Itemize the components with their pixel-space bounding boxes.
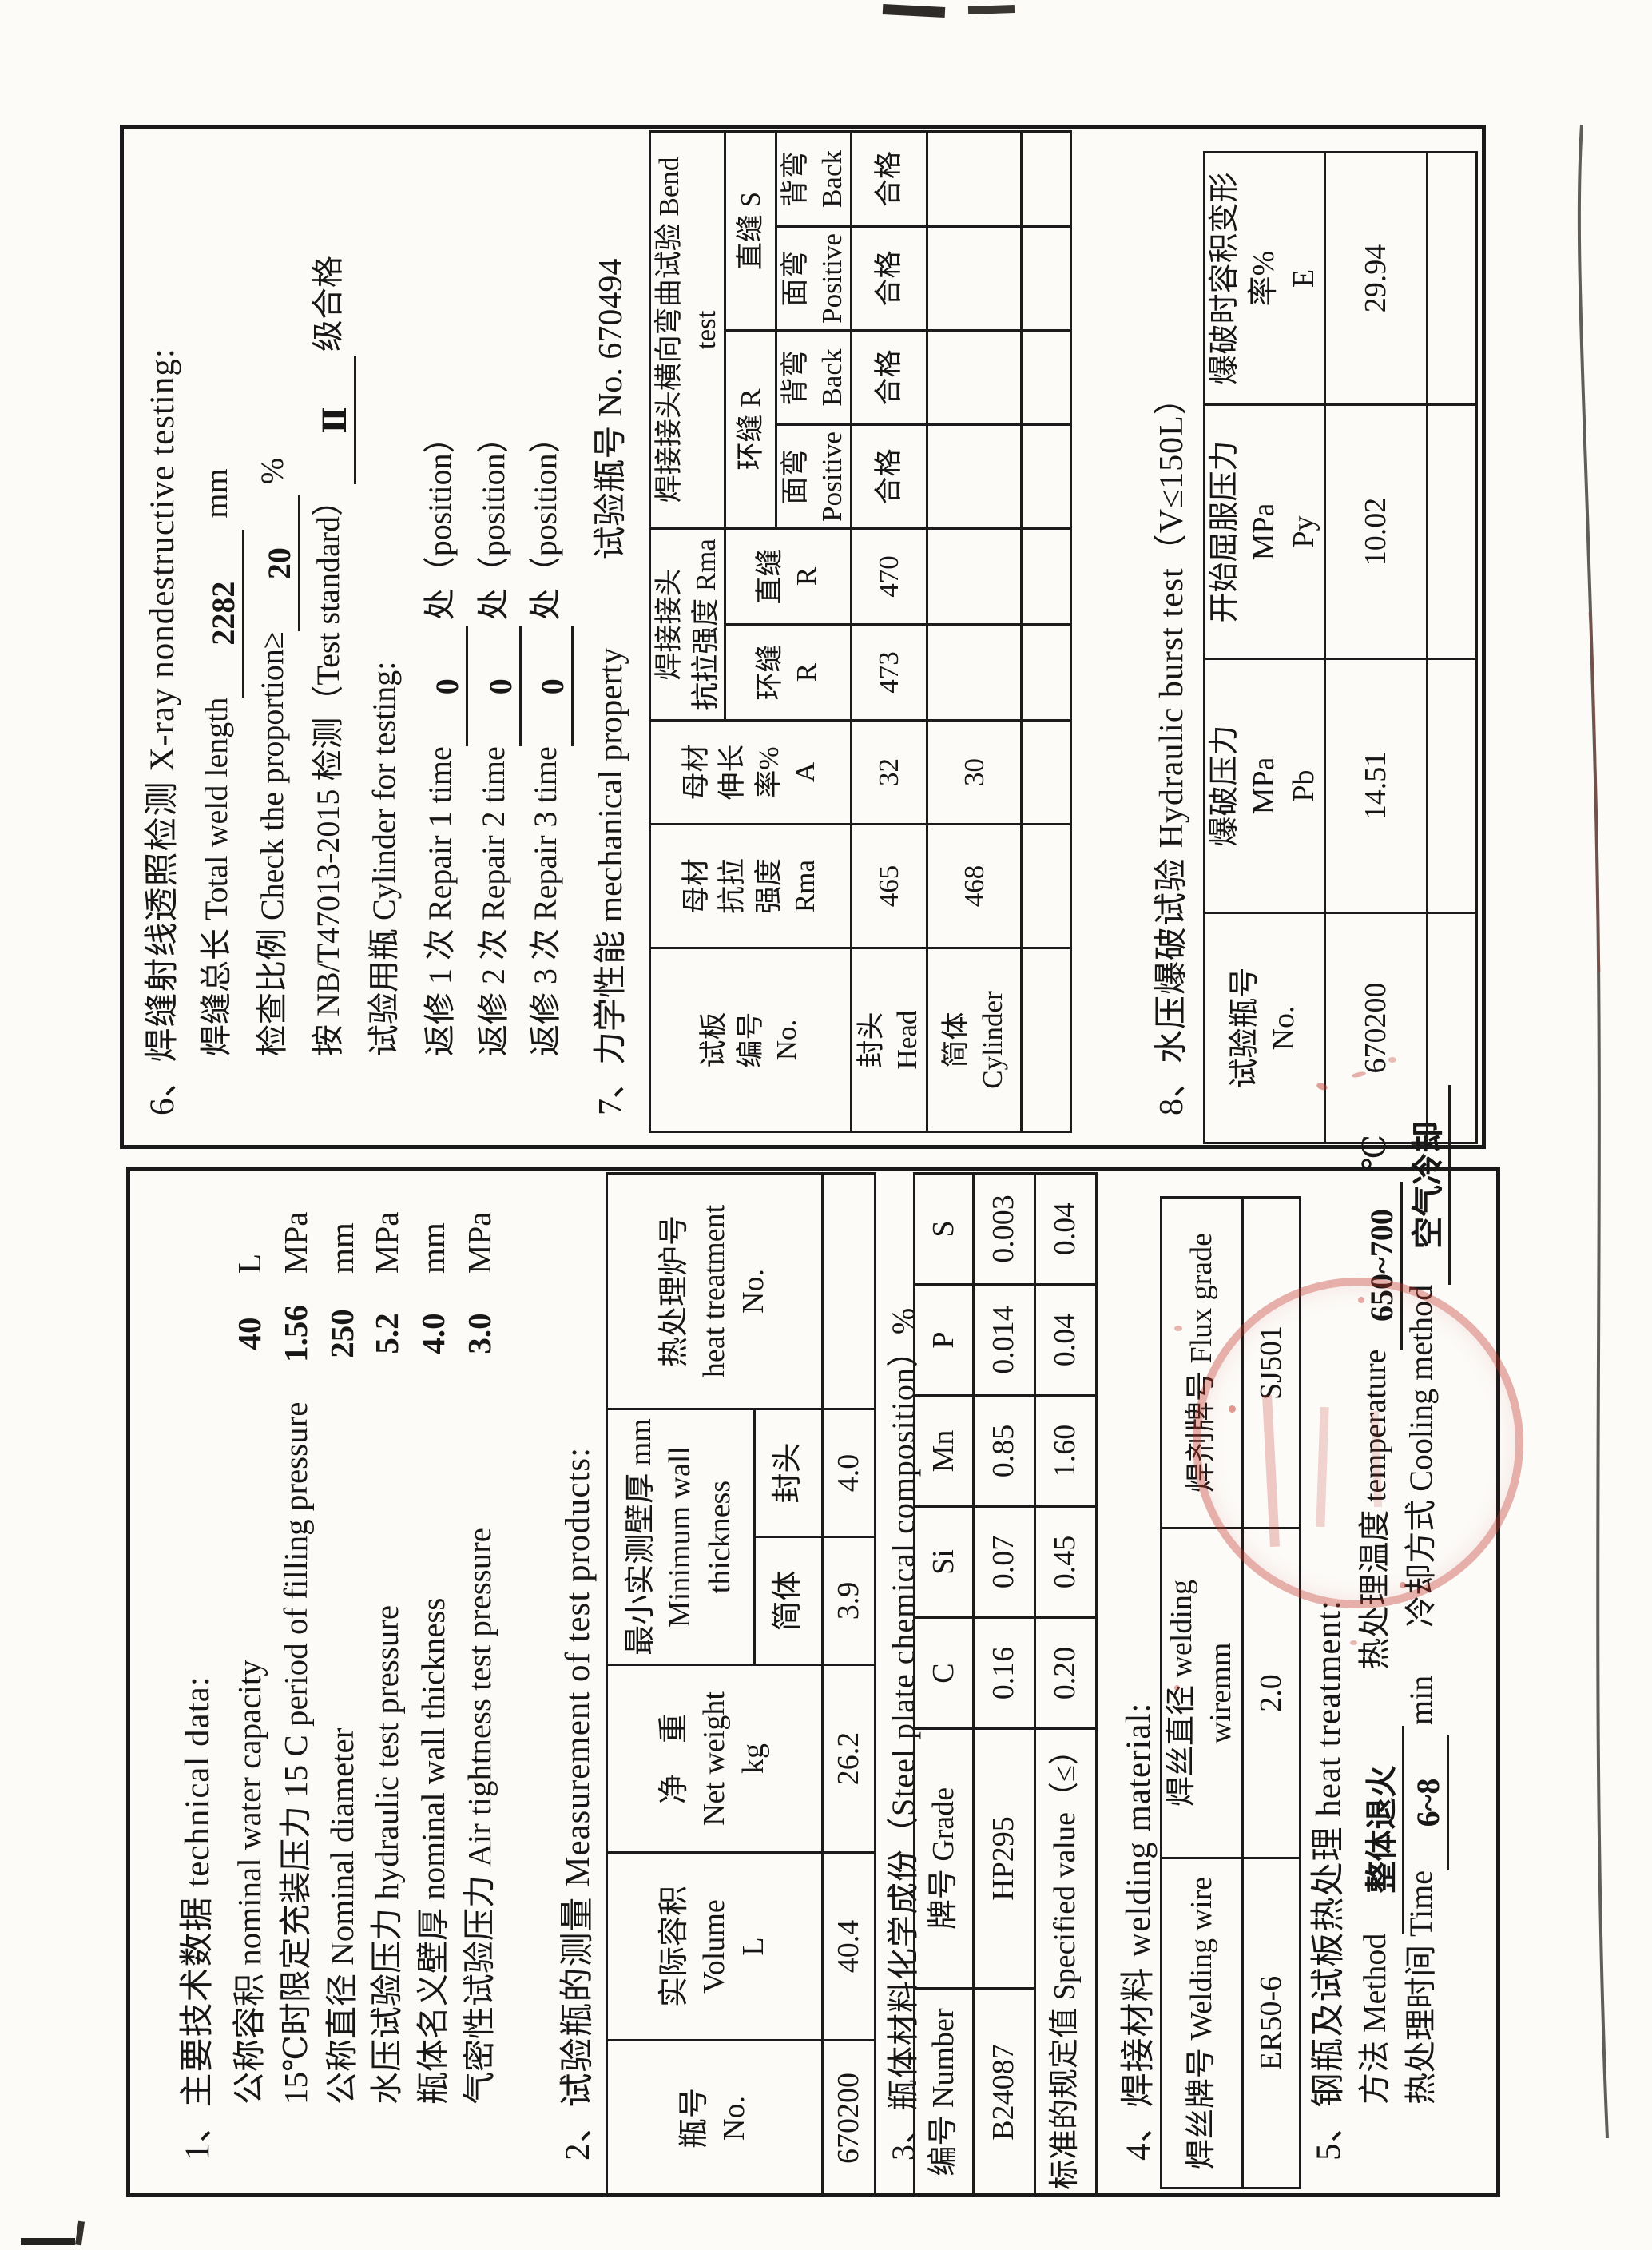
table-cell: 1.60 — [1035, 1396, 1097, 1507]
table-cell: 焊丝牌号 Welding wire — [1162, 1858, 1243, 2188]
table-cell: 试验瓶号 No. — [1205, 913, 1325, 1143]
table-row: 670200 14.51 10.02 29.94 — [1325, 153, 1428, 1143]
table-cell: 爆破压力 MPa Pb — [1205, 659, 1325, 913]
spec-value: 3.0 — [460, 1274, 498, 1393]
table-cell: 30 — [927, 721, 1022, 825]
table-cell — [1428, 659, 1477, 913]
table-cell — [927, 131, 1022, 226]
table-cell: 最小实测壁厚 mm Minimum wall thickness — [607, 1409, 755, 1665]
table-cell — [927, 528, 1022, 624]
table-cell: 封头 — [755, 1409, 823, 1537]
field-unit: 处（position） — [414, 421, 460, 620]
table-cell: 468 — [927, 825, 1022, 948]
section7-heading-line: 7、力学性能 mechanical property 试验瓶号 No. 6704… — [583, 259, 632, 1115]
table-cell: 合格 — [852, 226, 927, 330]
field-value: 0 — [428, 626, 468, 746]
xray-line: 检查比例 Check the proportion≥ 20 % — [246, 458, 293, 1056]
welding-material-table: 焊丝牌号 Welding wire 焊丝直径 welding wiremm 焊剂… — [1160, 1196, 1301, 2189]
table-cell — [927, 330, 1022, 424]
spec-value: 250 — [323, 1274, 361, 1393]
table-cell — [927, 226, 1022, 330]
spec-item: 水压试验压力 hydraulic test pressure 5.2 MPa — [359, 1186, 407, 2105]
table-cell: 标准的规定值 Specified value（≤） — [1035, 1729, 1097, 2196]
table-cell: 母材 抗拉 强度 Rma — [650, 825, 852, 948]
table-cell: 焊接接头 抗拉强度 Rma — [650, 528, 725, 720]
spec-unit: mm — [323, 1186, 361, 1274]
table-cell: 直缝 R — [725, 528, 852, 624]
table-cell: 14.51 — [1325, 659, 1428, 913]
table-cell: 465 — [852, 825, 927, 948]
table-cell: 简体 Cylinder — [927, 948, 1022, 1132]
section5-heading: 5、钢瓶及试板热处理 heat treatment: — [1301, 1600, 1350, 2161]
spec-label: 公称直径 Nominal diameter — [315, 1393, 363, 2105]
spec-unit: L — [230, 1186, 268, 1274]
spec-label: 气密性试验压力 Air tightness test pressure — [452, 1393, 500, 2105]
burst-test-table: 试验瓶号 No. 爆破压力 MPa Pb 开始屈服压力 MPa Py 爆破时容积… — [1203, 151, 1478, 1144]
measurement-table: 瓶号 No. 实际容积 Volume L 净 重 Net weight kg 最… — [606, 1172, 876, 2197]
spec-item: 气密性试验压力 Air tightness test pressure 3.0 … — [452, 1186, 500, 2105]
table-cell: 直缝 S — [725, 131, 776, 330]
table-cell — [1022, 131, 1071, 226]
section2-heading: 2、试验瓶的测量 Measurement of test products: — [550, 1447, 599, 2161]
scan-corner-artifact — [21, 2238, 75, 2245]
table-cell: 40.4 — [823, 1853, 876, 2041]
table-cell: 背弯 Back — [776, 131, 852, 226]
spec-item: 瓶体名义壁厚 nominal wall thickness 4.0 mm — [406, 1186, 454, 2105]
table-cell: S — [915, 1174, 974, 1285]
table-cell: 编号 Number — [915, 1989, 974, 2196]
spec-label: 公称容积 nominal water capacity — [222, 1393, 270, 2105]
table-cell: 环缝 R — [725, 330, 776, 528]
table-cell: 爆破时容积变形 率% E — [1205, 153, 1325, 405]
section1-heading: 1、主要技术数据 technical data: — [169, 1676, 219, 2161]
table-row: 试验瓶号 No. 爆破压力 MPa Pb 开始屈服压力 MPa Py 爆破时容积… — [1205, 153, 1325, 1143]
table-cell — [927, 625, 1022, 721]
field-unit: mm — [197, 468, 235, 518]
table-cell — [1022, 424, 1071, 528]
spec-value: 5.2 — [367, 1274, 406, 1393]
field-label: 方法 Method — [1348, 1934, 1395, 2105]
field-label: 试验用瓶 Cylinder for testing: — [358, 662, 404, 1056]
field-label: 返修 3 次 Repair 3 time — [519, 746, 566, 1056]
table-cell: P — [915, 1285, 974, 1396]
table-cell: 470 — [852, 528, 927, 624]
repair-line: 返修 1 次 Repair 1 time 0 处（position） — [414, 421, 461, 1056]
field-label: 按 NB/T47013-2015 检测（Test standard） — [302, 484, 348, 1056]
mechanical-table: 试板 编号 No. 母材 抗拉 强度 Rma 母材 伸长 率% A 焊接接头 抗… — [649, 130, 1072, 1133]
table-cell: 简体 — [755, 1537, 823, 1665]
table-row — [1428, 153, 1477, 1143]
spec-unit: MPa — [367, 1186, 406, 1274]
table-cell — [1022, 948, 1071, 1132]
field-value: Ⅱ — [316, 356, 356, 484]
repair-line: 返修 2 次 Repair 2 time 0 处（position） — [467, 421, 514, 1056]
table-cell: Mn — [915, 1396, 974, 1507]
spec-label: 水压试验压力 hydraulic test pressure — [359, 1393, 407, 2105]
xray-line: 焊缝总长 Total weld length 2282 mm — [190, 468, 237, 1056]
table-cell — [1022, 528, 1071, 624]
table-cell: 合格 — [852, 131, 927, 226]
table-cell: 473 — [852, 625, 927, 721]
table-cell: 0.04 — [1035, 1174, 1097, 1285]
table-cell: 32 — [852, 721, 927, 825]
table-cell: 26.2 — [823, 1665, 876, 1853]
table-cell: 焊丝直径 welding wiremm — [1162, 1528, 1243, 1858]
table-cell: 封头 Head — [852, 948, 927, 1132]
scan-edge-artifact — [968, 5, 1015, 14]
table-cell: 合格 — [852, 424, 927, 528]
spec-unit: MPa — [460, 1186, 498, 1274]
table-cell — [1428, 153, 1477, 405]
table-cell: 0.003 — [974, 1174, 1035, 1285]
table-cell: 面弯 Positive — [776, 226, 852, 330]
field-unit: 处（position） — [467, 421, 514, 620]
table-row: 编号 Number 牌号 Grade C Si Mn P S — [915, 1174, 974, 2196]
table-row: 标准的规定值 Specified value（≤） 0.20 0.45 1.60… — [1035, 1174, 1097, 2196]
table-cell: 4.0 — [823, 1409, 876, 1537]
field-value: 2282 — [205, 530, 244, 698]
section7-heading: 7、力学性能 mechanical property — [583, 648, 632, 1116]
field-value: 6~8 — [1409, 1735, 1449, 1870]
xray-line: 试验用瓶 Cylinder for testing: — [358, 662, 404, 1056]
table-cell: Si — [915, 1507, 974, 1618]
table-cell: 开始屈服压力 MPa Py — [1205, 405, 1325, 659]
field-unit: min — [1402, 1676, 1440, 1725]
table-cell: HP295 — [974, 1729, 1035, 1989]
table-cell: 瓶号 No. — [607, 2041, 823, 2196]
table-cell — [1428, 913, 1477, 1143]
table-cell: C — [915, 1618, 974, 1729]
table-cell: 焊剂牌号 Flux grade — [1162, 1198, 1243, 1528]
repair-line: 返修 3 次 Repair 3 time 0 处（position） — [519, 421, 566, 1056]
field-unit: % — [253, 458, 291, 484]
spec-unit: MPa — [276, 1186, 315, 1274]
field-value: 0 — [482, 626, 522, 746]
field-unit: 级合格 — [302, 256, 348, 352]
table-cell: 合格 — [852, 330, 927, 424]
table-cell: 背弯 Back — [776, 330, 852, 424]
table-row: 试板 编号 No. 母材 抗拉 强度 Rma 母材 伸长 率% A 焊接接头 抗… — [650, 131, 725, 1131]
table-row: 简体 Cylinder 468 30 — [927, 131, 1022, 1131]
table-cell: 0.45 — [1035, 1507, 1097, 1618]
table-cell — [1428, 405, 1477, 659]
table-row: ER50-6 2.0 SJ501 — [1242, 1198, 1300, 2188]
table-cell: 牌号 Grade — [915, 1729, 974, 1989]
table-cell: 0.07 — [974, 1507, 1035, 1618]
field-label: 冷却方式 Cooling method — [1395, 1285, 1441, 1628]
field-label: 返修 2 次 Repair 2 time — [467, 746, 514, 1056]
section7-bottle-no: 试验瓶号 No. 670494 — [583, 259, 632, 560]
table-cell: 实际容积 Volume L — [607, 1853, 823, 2041]
table-cell: 29.94 — [1325, 153, 1428, 405]
table-cell — [1022, 721, 1071, 825]
table-cell — [1022, 825, 1071, 948]
spec-unit: mm — [414, 1186, 452, 1274]
table-cell — [927, 424, 1022, 528]
table-cell: B24087 — [974, 1989, 1035, 2196]
field-unit: 处（position） — [519, 421, 566, 620]
table-cell: 0.16 — [974, 1618, 1035, 1729]
heat-treatment-line1: 方法 Method 整体退火 热处理温度 temperature 650~700… — [1348, 1135, 1397, 2105]
table-cell: 试板 编号 No. — [650, 948, 852, 1132]
field-label: 焊缝总长 Total weld length — [190, 698, 236, 1056]
table-cell: 0.014 — [974, 1285, 1035, 1396]
table-cell: 0.04 — [1035, 1285, 1097, 1396]
scan-corner-artifact — [75, 2221, 85, 2246]
field-label: 检查比例 Check the proportion≥ — [246, 631, 292, 1056]
spec-item: 公称容积 nominal water capacity 40 L — [222, 1186, 270, 2105]
table-cell: 0.20 — [1035, 1618, 1097, 1729]
section4-heading: 4、焊接材料 welding material: — [1110, 1703, 1160, 2161]
table-cell: 3.9 — [823, 1537, 876, 1665]
table-cell: 环缝 R — [725, 625, 852, 721]
table-cell: 670200 — [1325, 913, 1428, 1143]
spec-item: 15℃时限定充装压力 15 C period of filling pressu… — [268, 1186, 316, 2105]
table-cell: 2.0 — [1242, 1528, 1300, 1858]
table-cell: 面弯 Positive — [776, 424, 852, 528]
table-cell: 净 重 Net weight kg — [607, 1665, 823, 1853]
scan-edge-artifact — [883, 4, 946, 18]
table-cell: 焊接接头横向弯曲试验 Bend test — [650, 131, 725, 528]
table-row: 瓶号 No. 实际容积 Volume L 净 重 Net weight kg 最… — [607, 1174, 755, 2196]
spec-label: 15℃时限定充装压力 15 C period of filling pressu… — [268, 1393, 316, 2105]
spec-item: 公称直径 Nominal diameter 250 mm — [315, 1186, 363, 2105]
scanned-document: 1、主要技术数据 technical data: 公称容积 nominal wa… — [0, 0, 1652, 2250]
spec-value: 40 — [230, 1274, 268, 1393]
section6-heading: 6、焊缝射线透照检测 X-ray nondestructive testing: — [134, 348, 184, 1115]
table-cell: 0.85 — [974, 1396, 1035, 1507]
field-label: 返修 1 次 Repair 1 time — [414, 746, 460, 1056]
xray-line: 按 NB/T47013-2015 检测（Test standard） Ⅱ 级合格 — [302, 256, 349, 1056]
table-row: 670200 40.4 26.2 3.9 4.0 — [823, 1174, 876, 2196]
field-label: 热处理时间 Time — [1395, 1870, 1441, 2105]
table-row: B24087 HP295 0.16 0.07 0.85 0.014 0.003 — [974, 1174, 1035, 2196]
spec-value: 4.0 — [414, 1274, 452, 1393]
table-cell — [1022, 330, 1071, 424]
table-cell — [1022, 226, 1071, 330]
report-page: 1、主要技术数据 technical data: 公称容积 nominal wa… — [0, 0, 1652, 2250]
field-value: 0 — [534, 626, 574, 746]
table-cell: 母材 伸长 率% A — [650, 721, 852, 825]
section8-heading: 8、水压爆破试验 Hydraulic burst test（V≤150L） — [1144, 380, 1193, 1115]
table-cell: ER50-6 — [1242, 1858, 1300, 2188]
heat-treatment-line2: 热处理时间 Time 6~8 min 冷却方式 Cooling method 空… — [1395, 1085, 1444, 2105]
table-cell: SJ501 — [1242, 1198, 1300, 1528]
table-cell — [1022, 625, 1071, 721]
spec-label: 瓶体名义壁厚 nominal wall thickness — [406, 1393, 454, 2105]
table-cell: 热处理炉号 heat treatment No. — [607, 1174, 823, 1409]
spec-value: 1.56 — [276, 1274, 315, 1393]
table-cell — [823, 1174, 876, 1409]
table-row: 封头 Head 465 32 473 470 合格 合格 合格 合格 — [852, 131, 927, 1131]
table-cell: 10.02 — [1325, 405, 1428, 659]
chemistry-table: 编号 Number 牌号 Grade C Si Mn P S B24087 HP… — [913, 1172, 1098, 2197]
paper-edge-line — [1550, 0, 1652, 2250]
field-value: 20 — [260, 495, 300, 631]
table-row — [1022, 131, 1071, 1131]
table-cell: 670200 — [823, 2041, 876, 2196]
field-label: 热处理温度 temperature — [1348, 1350, 1395, 1670]
table-row: 焊丝牌号 Welding wire 焊丝直径 welding wiremm 焊剂… — [1162, 1198, 1243, 2188]
